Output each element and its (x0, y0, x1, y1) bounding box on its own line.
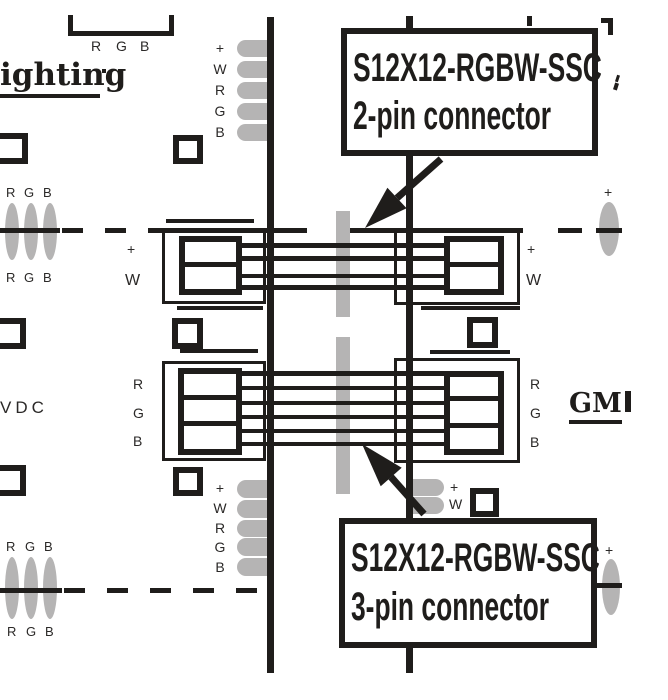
brand-logo-right-partial: GM (569, 390, 622, 424)
connector-label-b: B (530, 435, 539, 449)
pad-label-g: G (212, 540, 228, 554)
bracket-label-b: B (140, 39, 149, 53)
voltage-label: VDC (0, 399, 48, 416)
pad-label-plus: + (450, 480, 458, 494)
connector-edge-line (177, 306, 263, 310)
pad-label-plus: + (212, 41, 228, 55)
strip-component (0, 318, 26, 349)
connector-label-b: B (133, 434, 142, 448)
brand-logo-right-text: GM (569, 388, 622, 419)
callout-2pin-title: S12X12-RGBW-SSC (353, 48, 602, 88)
connector-edge-line (421, 306, 520, 310)
solder-pad (237, 500, 268, 518)
cut-label-r: R (7, 625, 16, 638)
partial-glyph-mark (615, 75, 620, 83)
solder-pad (237, 538, 268, 556)
cut-label-b: B (44, 540, 53, 553)
cut-label-g: G (25, 540, 35, 553)
solder-pad (237, 520, 268, 537)
connector-edge-line (180, 349, 258, 353)
connector-label-w: W (526, 273, 541, 289)
strip-component (172, 318, 203, 349)
cut-label-b: B (45, 625, 54, 638)
pad-label-w: W (449, 497, 462, 511)
cut-label-r: R (6, 540, 15, 553)
connector-label-r: R (530, 377, 540, 391)
strip-component (0, 465, 26, 496)
callout-3pin-connector: S12X12-RGBW-SSC 3-pin connector (339, 518, 597, 648)
strip-component (173, 135, 203, 164)
cut-line-segment (597, 583, 622, 588)
logo-trademark-dot (102, 69, 106, 73)
callout-3pin-title: S12X12-RGBW-SSC (351, 538, 600, 578)
pad-label-g: G (212, 104, 228, 118)
brand-logo-left-partial: ighting (0, 60, 100, 98)
cut-label-r: R (6, 186, 15, 199)
wiring-diagram-canvas: R G B + W R G B + W R G B + W R G B R G … (0, 0, 668, 700)
strip-component (173, 467, 203, 496)
partial-glyph-mark (613, 83, 619, 91)
callout-3pin-subtitle: 3-pin connector (351, 587, 549, 627)
connector-label-g: G (530, 406, 541, 420)
solder-pad (237, 103, 268, 120)
bracket-label-r: R (91, 39, 101, 53)
cut-line-dashes (62, 228, 162, 233)
connector-label-plus: + (127, 242, 135, 256)
cut-line-dash (558, 228, 582, 233)
pad-label-w: W (212, 62, 228, 76)
cut-label-g: G (24, 271, 34, 284)
connector-pin-divider (450, 423, 498, 428)
cut-label-b: B (43, 186, 52, 199)
connector-label-r: R (133, 377, 143, 391)
solder-pad (237, 124, 268, 141)
connector-pin-divider (184, 395, 236, 400)
cut-label-plus: + (604, 185, 612, 199)
connector-3pin-right-body (444, 371, 504, 455)
cut-label-g: G (26, 625, 36, 638)
connector-pin-divider (450, 262, 498, 267)
strip-component (467, 317, 498, 348)
cut-label-b: B (43, 271, 52, 284)
connector-edge-line (166, 219, 254, 223)
connector-pin-divider (450, 396, 498, 401)
solder-pad (237, 558, 268, 576)
connector-edge-line (430, 350, 510, 354)
brand-logo-right-cut-letter (625, 391, 631, 412)
solder-pad (237, 480, 268, 498)
pad-label-b: B (212, 125, 228, 139)
bracket-horizontal (68, 31, 174, 36)
callout-2pin-subtitle: 2-pin connector (353, 96, 551, 136)
cut-label-g: G (24, 186, 34, 199)
connector-3pin-left-body (178, 368, 242, 455)
cut-label-plus: + (605, 543, 613, 557)
connector-pin-divider (185, 262, 236, 267)
connector-label-w: W (125, 273, 140, 289)
pad-label-r: R (212, 521, 228, 535)
bracket-hook-vertical (608, 18, 613, 35)
connector-label-plus: + (527, 242, 535, 256)
cut-line-segment (0, 228, 60, 233)
cut-line-segment (0, 588, 62, 593)
strip-component (470, 488, 499, 517)
bracket-label-g: G (116, 39, 127, 53)
arrow-to-2pin-clip (365, 159, 441, 228)
pad-label-r: R (212, 83, 228, 97)
connector-label-g: G (133, 406, 144, 420)
solder-pad (237, 61, 268, 78)
cut-line-segment (596, 228, 622, 233)
solder-pad (237, 82, 268, 99)
ssc-clip-2pin (336, 211, 350, 317)
solder-pad (410, 497, 444, 514)
solder-pad (237, 40, 268, 57)
cut-label-r: R (6, 271, 15, 284)
strip-component (0, 133, 28, 164)
solder-pad (410, 479, 444, 496)
pad-label-w: W (212, 501, 228, 515)
pad-label-plus: + (212, 481, 228, 495)
pad-label-b: B (212, 560, 228, 574)
left-strip-edge-line (267, 17, 274, 673)
strip-tick (527, 16, 532, 26)
cut-line-dashes (64, 588, 274, 593)
connector-pin-divider (184, 421, 236, 426)
callout-2pin-connector: S12X12-RGBW-SSC 2-pin connector (341, 28, 598, 156)
